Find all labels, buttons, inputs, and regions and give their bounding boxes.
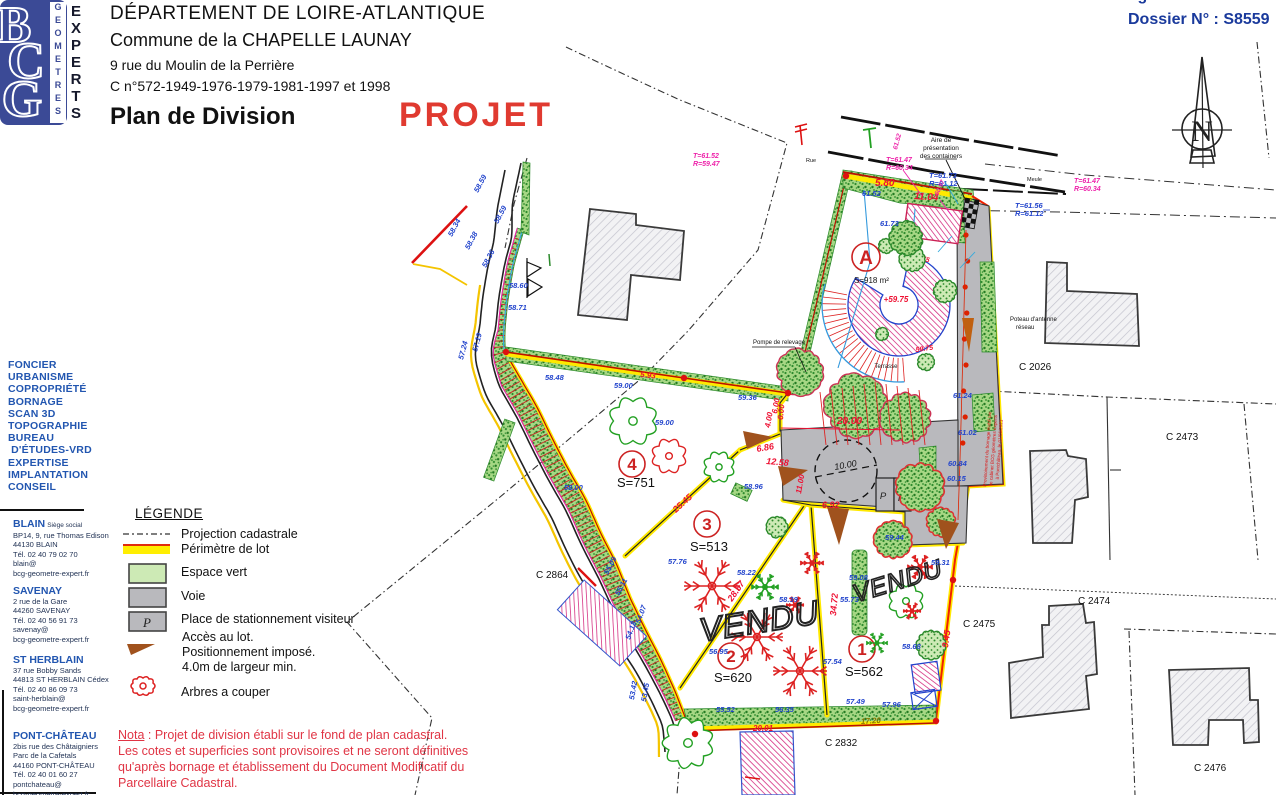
- svg-text:9.45: 9.45: [940, 629, 952, 649]
- svg-text:17.20: 17.20: [861, 716, 882, 726]
- svg-text:T=61.47: T=61.47: [1074, 178, 1101, 185]
- svg-text:C 2475: C 2475: [963, 619, 996, 630]
- svg-text:C 2476: C 2476: [1194, 763, 1227, 774]
- svg-text:6.92: 6.92: [822, 500, 840, 510]
- svg-text:R=60.34: R=60.34: [1074, 186, 1101, 193]
- svg-text:C 2832: C 2832: [825, 738, 858, 749]
- svg-text:C 2473: C 2473: [1166, 432, 1199, 443]
- svg-text:60.15: 60.15: [947, 474, 967, 483]
- svg-text:réseau: réseau: [1016, 325, 1034, 331]
- svg-text:57.76: 57.76: [668, 557, 688, 566]
- svg-text:61.24: 61.24: [953, 391, 973, 400]
- svg-text:Rue: Rue: [806, 158, 816, 164]
- svg-text:T=61.47: T=61.47: [886, 157, 913, 164]
- svg-text:34.72: 34.72: [828, 593, 840, 616]
- svg-text:6.00: 6.00: [776, 403, 786, 420]
- svg-text:61.52: 61.52: [862, 189, 882, 198]
- svg-text:S=620: S=620: [714, 670, 752, 685]
- svg-text:58.71: 58.71: [508, 303, 527, 312]
- svg-text:58.36: 58.36: [480, 247, 497, 269]
- svg-text:E: E: [55, 15, 61, 25]
- svg-text:58.48: 58.48: [545, 373, 565, 382]
- svg-text:Aire de: Aire de: [931, 137, 952, 144]
- svg-text:58.00: 58.00: [564, 483, 584, 492]
- svg-text:T: T: [71, 88, 80, 105]
- svg-text:P: P: [880, 491, 887, 502]
- svg-text:59.08: 59.08: [849, 573, 869, 582]
- svg-text:57.54: 57.54: [823, 657, 843, 666]
- svg-text:S=918 m²: S=918 m²: [854, 276, 889, 285]
- svg-text:E: E: [71, 54, 81, 71]
- svg-text:58.68: 58.68: [902, 642, 922, 651]
- svg-text:57.19: 57.19: [470, 331, 484, 352]
- svg-text:58.38: 58.38: [463, 229, 480, 251]
- svg-text:E: E: [55, 54, 61, 64]
- svg-text:58.96: 58.96: [744, 482, 764, 491]
- svg-text:53.42: 53.42: [627, 679, 639, 700]
- svg-text:M: M: [54, 41, 62, 51]
- svg-text:N: N: [1191, 115, 1213, 148]
- svg-text:61.02: 61.02: [958, 428, 978, 437]
- svg-text:20.00: 20.00: [836, 416, 862, 427]
- svg-text:4: 4: [627, 455, 637, 474]
- svg-text:1: 1: [857, 640, 866, 659]
- svg-text:T=61.52: T=61.52: [693, 153, 719, 160]
- svg-text:Poteau d'antenne: Poteau d'antenne: [1010, 317, 1058, 323]
- svg-text:6.86: 6.86: [756, 441, 776, 454]
- svg-text:59.75: 59.75: [915, 345, 933, 354]
- svg-text:Terrasse: Terrasse: [874, 364, 898, 370]
- svg-text:C 2864: C 2864: [536, 570, 569, 581]
- svg-text:E: E: [55, 93, 61, 103]
- svg-text:59.36: 59.36: [738, 393, 758, 402]
- svg-text:53.45: 53.45: [639, 681, 651, 702]
- svg-text:58.39: 58.39: [779, 595, 799, 604]
- svg-text:X: X: [71, 20, 81, 37]
- svg-text:61.52: 61.52: [892, 133, 903, 151]
- svg-text:59.00: 59.00: [655, 418, 675, 427]
- svg-text:58.60: 58.60: [509, 281, 529, 290]
- svg-text:C 2474: C 2474: [1078, 596, 1111, 607]
- svg-text:58.59: 58.59: [472, 172, 489, 194]
- svg-text:P: P: [142, 615, 151, 630]
- svg-text:E: E: [71, 3, 81, 20]
- svg-text:57.49: 57.49: [846, 697, 866, 706]
- svg-text:59.31: 59.31: [931, 558, 950, 567]
- svg-text:P: P: [71, 37, 81, 54]
- svg-text:S: S: [55, 106, 61, 116]
- svg-text:R=61.12: R=61.12: [1015, 209, 1044, 218]
- svg-text:Pompe de relevage: Pompe de relevage: [753, 340, 806, 346]
- svg-text:59.00: 59.00: [614, 381, 634, 390]
- svg-text:56.95: 56.95: [709, 647, 729, 656]
- svg-text:5.80: 5.80: [875, 178, 895, 189]
- svg-text:Meule: Meule: [1027, 177, 1042, 183]
- svg-text:présentation: présentation: [923, 145, 959, 152]
- svg-text:58.34: 58.34: [446, 216, 463, 238]
- svg-text:60.84: 60.84: [948, 459, 968, 468]
- svg-text:S=562: S=562: [845, 664, 883, 679]
- svg-text:55.73: 55.73: [840, 595, 860, 604]
- svg-text:R=59.47: R=59.47: [693, 161, 721, 168]
- svg-text:55.52: 55.52: [716, 705, 736, 714]
- svg-text:+59.75: +59.75: [884, 295, 909, 304]
- svg-text:56.35: 56.35: [775, 705, 795, 714]
- svg-text:58.59: 58.59: [492, 203, 509, 225]
- svg-text:5.93: 5.93: [640, 370, 657, 381]
- svg-text:57.24: 57.24: [456, 339, 470, 360]
- svg-text:S=751: S=751: [617, 475, 655, 490]
- svg-text:A: A: [859, 248, 873, 269]
- svg-text:R: R: [55, 80, 62, 90]
- svg-text:S=513: S=513: [690, 539, 728, 554]
- svg-text:G: G: [54, 2, 61, 12]
- svg-text:C 2026: C 2026: [1019, 362, 1052, 373]
- svg-text:3: 3: [702, 515, 711, 534]
- svg-text:S: S: [71, 105, 81, 122]
- svg-text:R=60.34: R=60.34: [886, 165, 913, 172]
- svg-text:G: G: [2, 71, 42, 128]
- svg-text:R: R: [71, 71, 82, 88]
- svg-text:20.01: 20.01: [752, 724, 774, 733]
- svg-text:59.44: 59.44: [885, 533, 905, 542]
- svg-text:58.22: 58.22: [737, 568, 757, 577]
- svg-text:57.96: 57.96: [882, 700, 902, 709]
- svg-text:O: O: [54, 28, 61, 38]
- svg-text:61.73: 61.73: [880, 219, 900, 228]
- svg-text:12.58: 12.58: [766, 456, 789, 468]
- svg-text:T: T: [55, 67, 61, 77]
